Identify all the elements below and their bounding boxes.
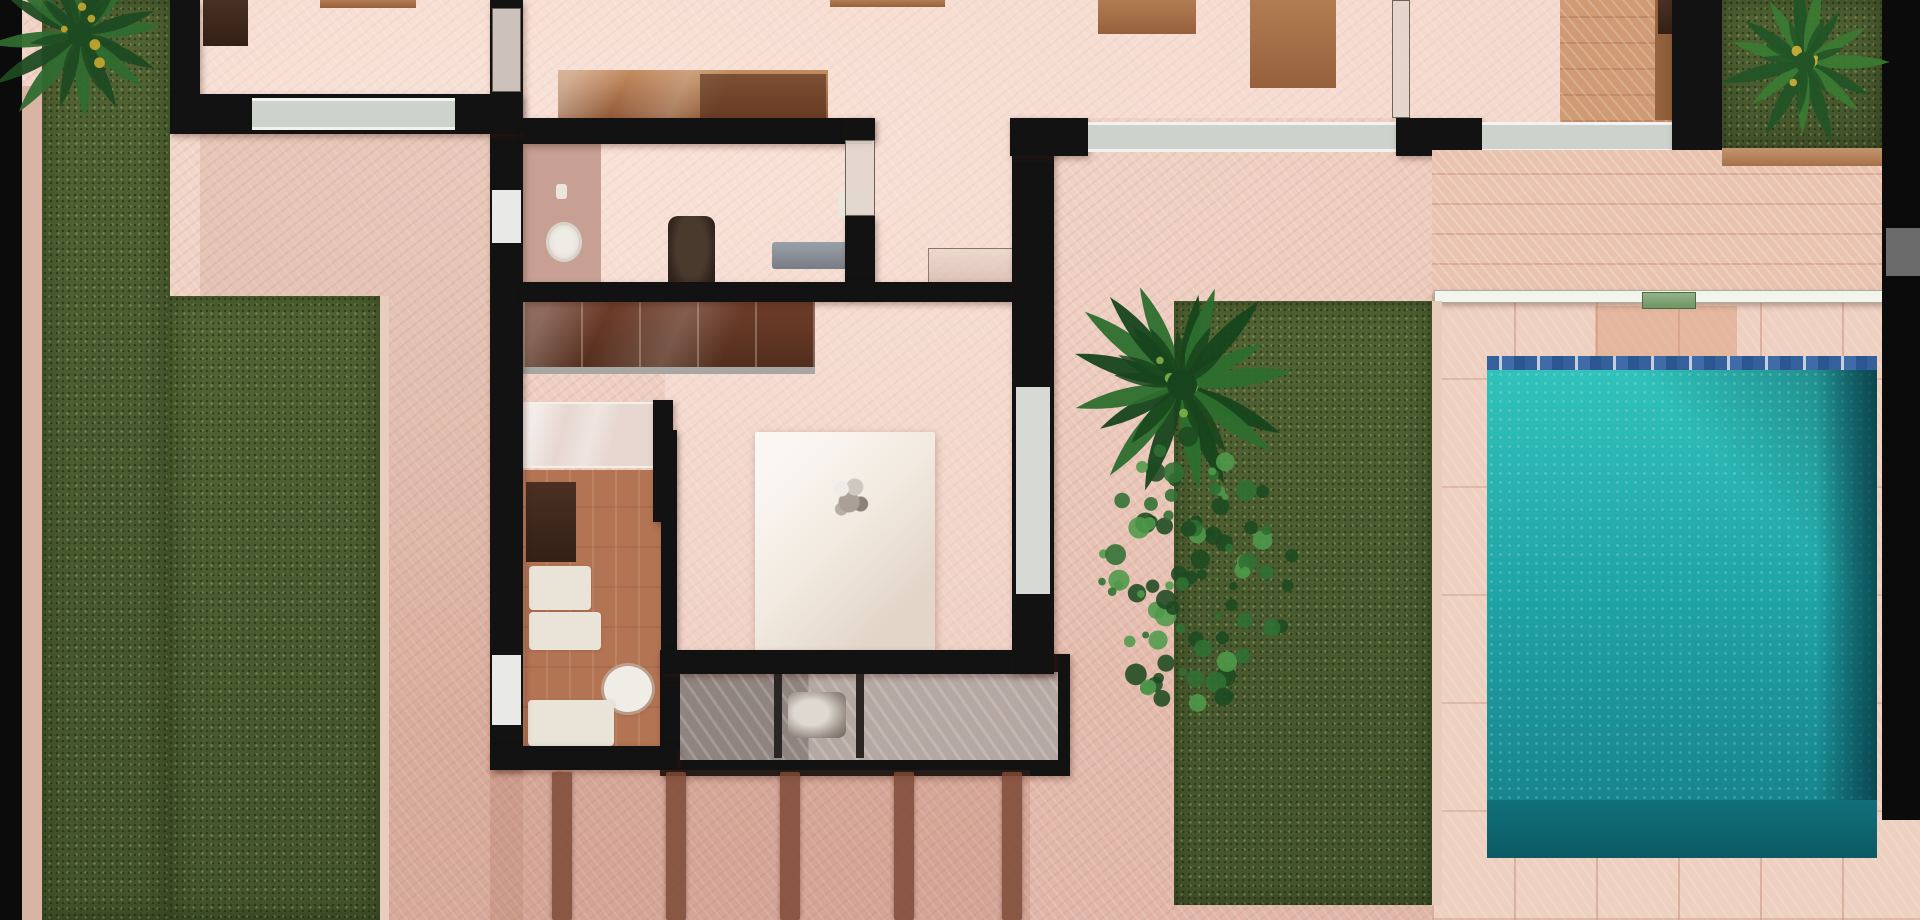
grass-edge-left — [380, 296, 389, 920]
wall-west-glassdoor — [492, 8, 521, 92]
wall-north-a — [1010, 118, 1088, 156]
living-wood-strip — [830, 0, 945, 7]
walkin-bench-a — [529, 566, 591, 610]
wall-kitchen-south — [523, 118, 872, 144]
bath-mat — [528, 700, 614, 746]
fence-gate — [1642, 292, 1696, 309]
pergola-beam-4 — [894, 772, 914, 920]
glass-mid — [845, 140, 875, 216]
wall-west-door — [492, 655, 521, 725]
wine-item — [788, 692, 846, 738]
wall-dressing-south — [523, 282, 1012, 302]
pool-right-shadow — [1817, 370, 1877, 802]
deck-warm-tile — [1595, 306, 1737, 358]
pool-bottom — [1487, 800, 1877, 858]
pergola-beam-5 — [1002, 772, 1022, 920]
bed-canopy — [755, 432, 935, 654]
wine-divider-b — [856, 672, 864, 758]
window-study — [252, 98, 455, 130]
study-shelf — [320, 0, 416, 8]
wall-glass-mid-a — [845, 118, 875, 140]
sink-basin — [546, 222, 582, 262]
wardrobe — [523, 302, 815, 374]
grass-edge-pool — [1432, 301, 1442, 905]
shower-glassbox — [523, 402, 660, 468]
walkin-bench-b — [529, 612, 601, 650]
grass-block-left — [168, 296, 380, 920]
pergola-beam-3 — [780, 772, 800, 920]
deck-planks — [1432, 150, 1882, 295]
palm-top-left-palm-tree-icon — [0, 0, 196, 151]
dining-table-a — [1098, 0, 1196, 34]
kitchen-cabinet-dark — [700, 74, 826, 120]
window-living — [1088, 122, 1396, 152]
floorplan-render — [0, 0, 1920, 920]
walkin-cabinet — [526, 482, 576, 562]
partition-glass — [1392, 0, 1410, 118]
soap-dish — [556, 184, 567, 199]
gray-wall-seg — [1886, 228, 1920, 276]
pergola-beam-2 — [666, 772, 686, 920]
wine-divider-a — [774, 672, 782, 758]
pool-mosaic-edge — [1487, 356, 1877, 371]
wall-bedroom-south — [660, 650, 1054, 674]
dining-table-b — [1250, 0, 1336, 88]
window-bedroom2 — [1482, 122, 1682, 152]
wall-bath-south — [490, 746, 678, 770]
bench-gray — [772, 242, 848, 269]
pergola-beam-1 — [552, 772, 572, 920]
study-desk — [203, 0, 248, 46]
tree-poolside-bush-icon — [1090, 425, 1300, 725]
path-left — [22, 86, 42, 920]
wine-cabinet-glass — [680, 672, 1058, 760]
palm-top-right-palm-tree-icon — [1704, 0, 1906, 163]
wall-walkin-east — [661, 430, 677, 656]
sink-counter — [523, 144, 601, 284]
wall-west-window — [492, 190, 521, 243]
chandelier — [827, 473, 875, 523]
